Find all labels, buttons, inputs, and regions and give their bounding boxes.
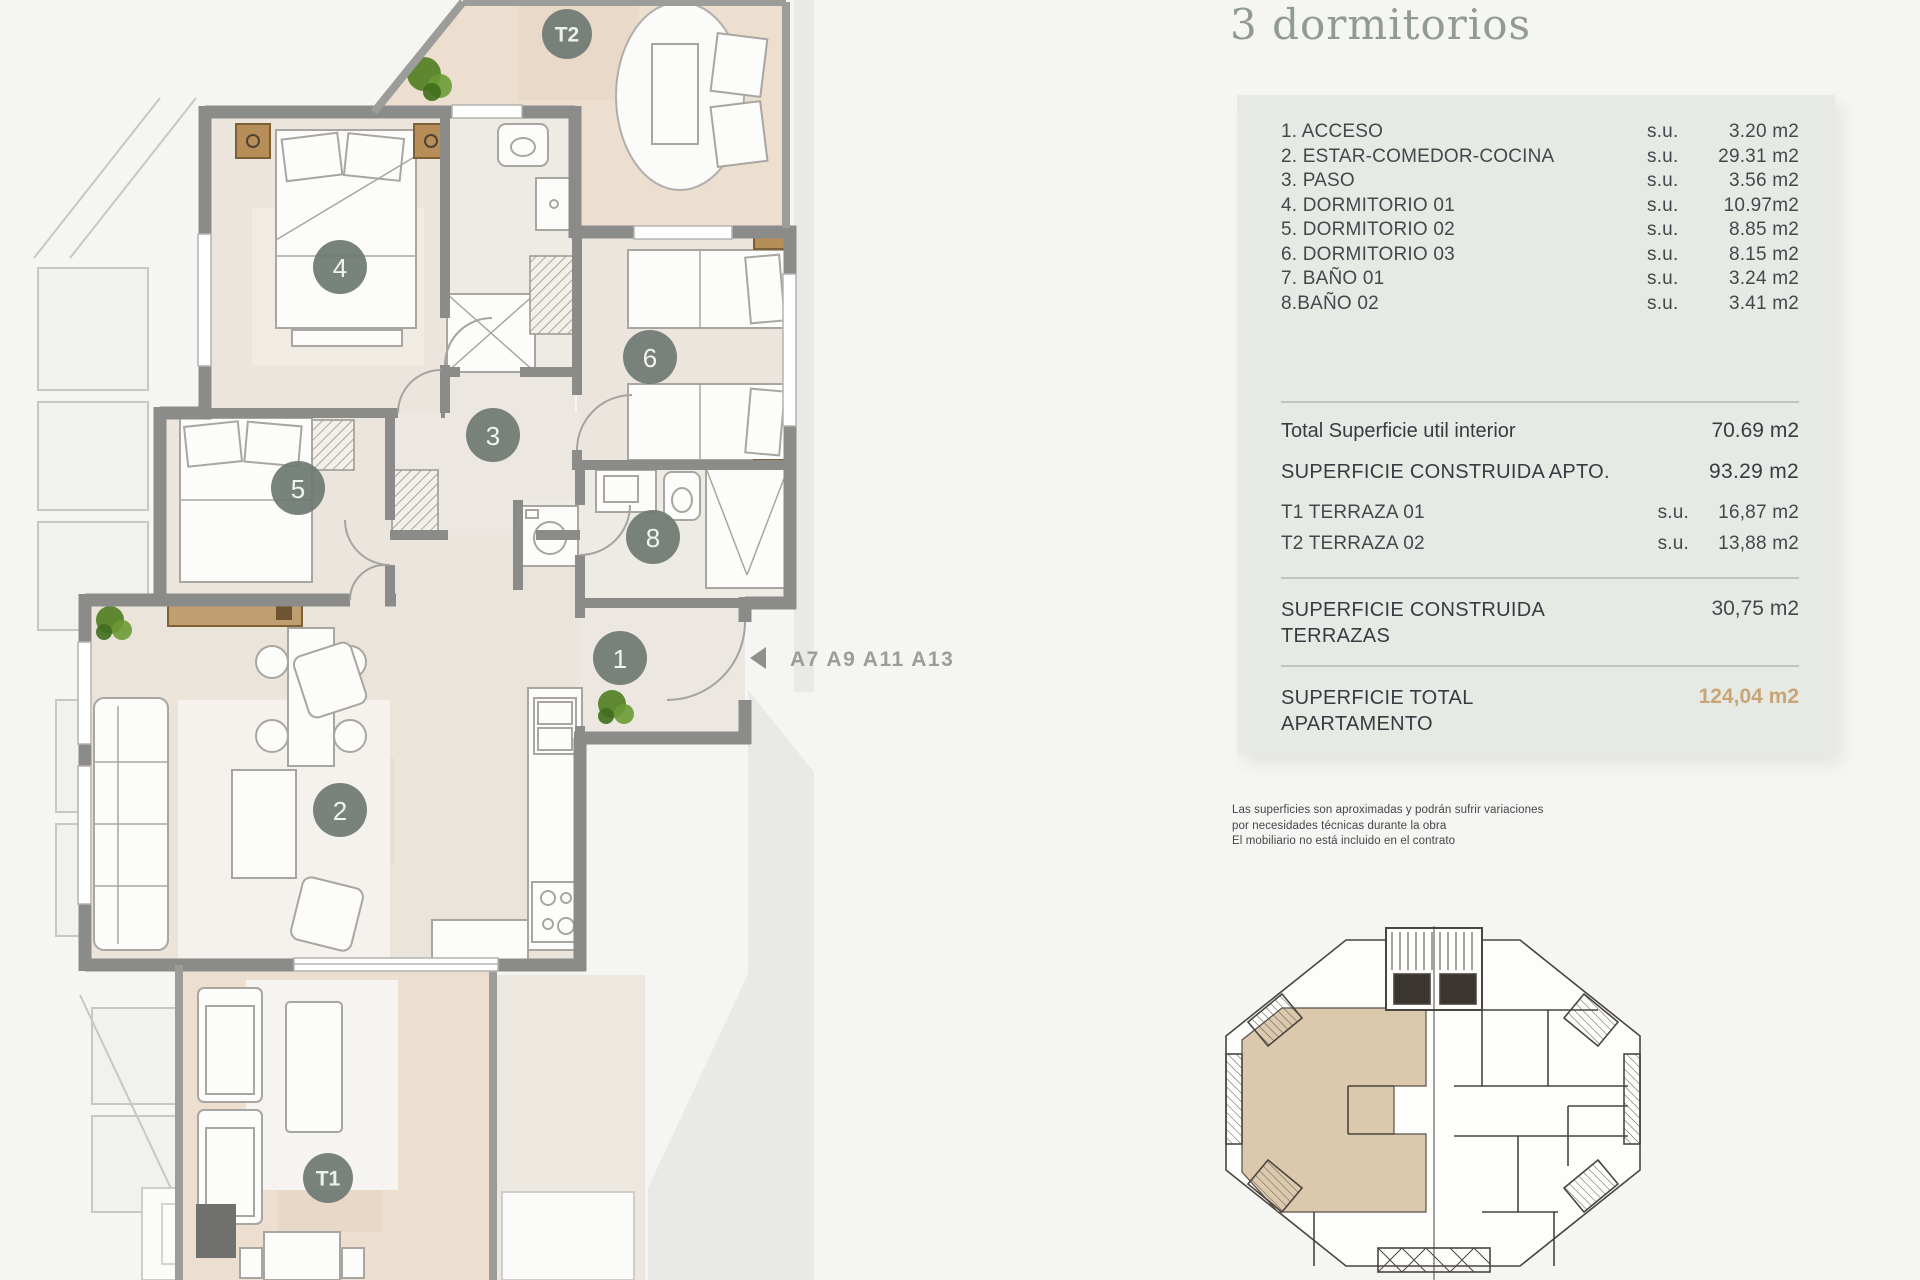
building-key-plan: [1218, 926, 1648, 1280]
terraza2-row: T2 TERRAZA 02 s.u. 13,88 m2: [1281, 533, 1799, 558]
marker-t2: T2: [542, 9, 592, 59]
table-row: 8.BAÑO 02s.u.3.41 m2: [1281, 293, 1799, 318]
marker-4: 4: [313, 240, 367, 294]
svg-text:T1: T1: [316, 1168, 341, 1191]
table-row: 1. ACCESOs.u.3.20 m2: [1281, 121, 1799, 146]
divider: [1281, 401, 1799, 403]
arrow-left-icon: [750, 647, 766, 669]
brochure-page: T2 4 6 3 5 8 1 2 T1 A7 A9 A11 A13 3 d: [0, 0, 1920, 1280]
construida-apto-row: SUPERFICIE CONSTRUIDA APTO. 93.29 m2: [1281, 460, 1799, 484]
svg-text:4: 4: [333, 253, 347, 283]
svg-text:2: 2: [333, 796, 347, 826]
table-row: 4. DORMITORIO 01s.u.10.97m2: [1281, 195, 1799, 220]
marker-6: 6: [623, 330, 677, 384]
page-title: 3 dormitorios: [1230, 0, 1531, 49]
divider: [1281, 577, 1799, 579]
unit-label: A7 A9 A11 A13: [790, 648, 954, 671]
table-row: 6. DORMITORIO 03s.u.8.15 m2: [1281, 244, 1799, 269]
marker-5: 5: [271, 461, 325, 515]
unit-label-group: A7 A9 A11 A13: [750, 647, 954, 671]
marker-2: 2: [313, 783, 367, 837]
room-floors: [85, 0, 790, 1280]
table-row: 2. ESTAR-COMEDOR-COCINAs.u.29.31 m2: [1281, 146, 1799, 171]
svg-text:8: 8: [646, 523, 660, 553]
terraza1-row: T1 TERRAZA 01 s.u. 16,87 m2: [1281, 502, 1799, 527]
svg-text:T2: T2: [555, 24, 580, 47]
total-util-row: Total Superficie util interior 70.69 m2: [1281, 419, 1799, 443]
table-row: 3. PASOs.u.3.56 m2: [1281, 170, 1799, 195]
total-value: 124,04 m2: [1699, 685, 1799, 737]
marker-t1: T1: [303, 1153, 353, 1203]
total-apartamento-row: SUPERFICIE TOTAL APARTAMENTO 124,04 m2: [1281, 685, 1799, 737]
svg-text:5: 5: [291, 474, 305, 504]
disclaimer: Las superficies son aproximadas y podrán…: [1232, 803, 1543, 850]
divider: [1281, 665, 1799, 667]
marker-8: 8: [626, 510, 680, 564]
surface-table: 1. ACCESOs.u.3.20 m2 2. ESTAR-COMEDOR-CO…: [1237, 95, 1835, 755]
svg-text:3: 3: [486, 421, 500, 451]
table-row: 5. DORMITORIO 02s.u.8.85 m2: [1281, 219, 1799, 244]
construida-terrazas-row: SUPERFICIE CONSTRUIDA TERRAZAS 30,75 m2: [1281, 597, 1799, 649]
table-row: 7. BAÑO 01s.u.3.24 m2: [1281, 268, 1799, 293]
svg-text:6: 6: [643, 343, 657, 373]
marker-3: 3: [466, 408, 520, 462]
svg-text:1: 1: [613, 644, 627, 674]
apartment-floor-plan: T2 4 6 3 5 8 1 2 T1 A7 A9 A11 A13: [0, 0, 1000, 1280]
marker-1: 1: [593, 631, 647, 685]
